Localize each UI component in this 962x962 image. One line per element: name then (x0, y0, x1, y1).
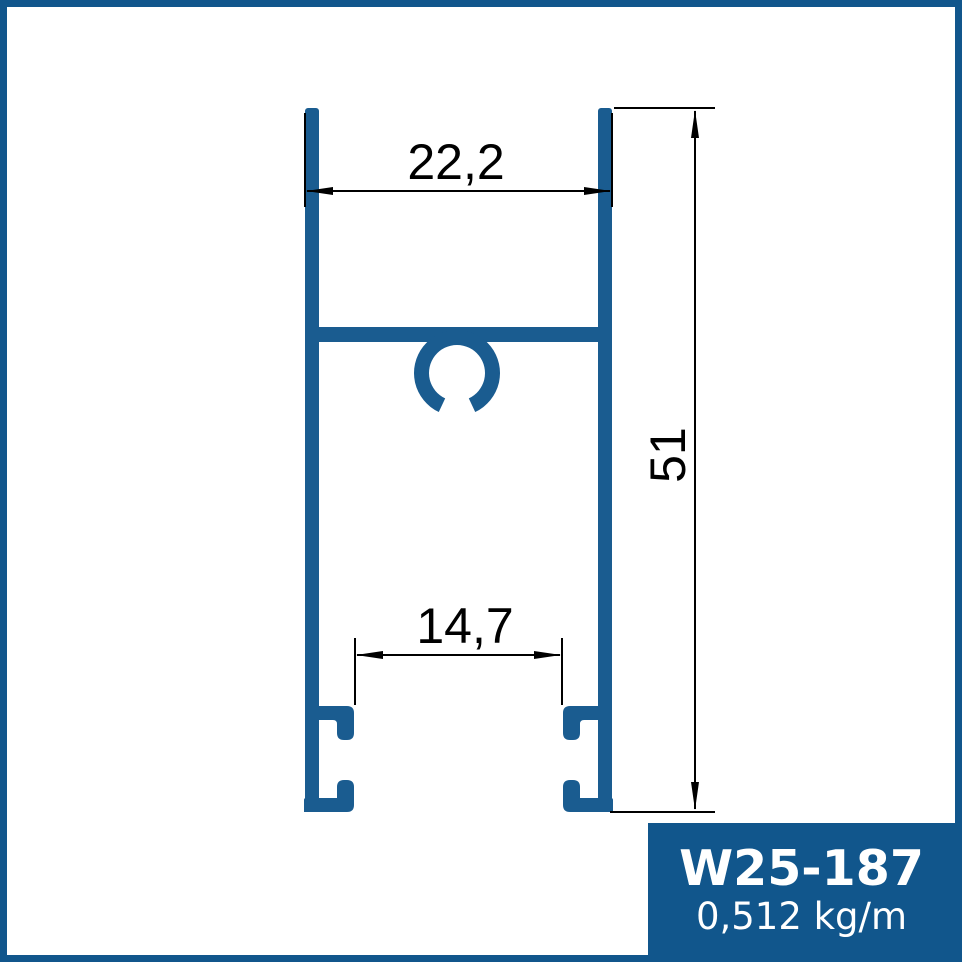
dimension-value-height: 51 (643, 427, 693, 483)
profile-code: W25-187 (679, 844, 924, 893)
profile-left-hook-arm (319, 706, 354, 740)
dimension-value-bottom-inner-width: 14,7 (416, 601, 513, 651)
arrow-left-icon (356, 651, 383, 659)
profile-unit-weight: 0,512 kg/m (696, 898, 907, 935)
arrow-down-icon (691, 782, 699, 810)
drawing-canvas: 22,2 14,7 51 W25-187 0,512 kg/m (0, 0, 962, 962)
profile-right-wall (598, 108, 612, 812)
dimension-value-top-width: 22,2 (407, 137, 504, 187)
profile-label-box: W25-187 0,512 kg/m (648, 823, 955, 955)
profile-shape (304, 108, 613, 812)
arrow-right-icon (534, 651, 561, 659)
profile-right-hook-arm (563, 706, 598, 740)
profile-left-wall (305, 108, 319, 812)
profile-screw-port (414, 330, 500, 412)
arrow-up-icon (691, 110, 699, 138)
